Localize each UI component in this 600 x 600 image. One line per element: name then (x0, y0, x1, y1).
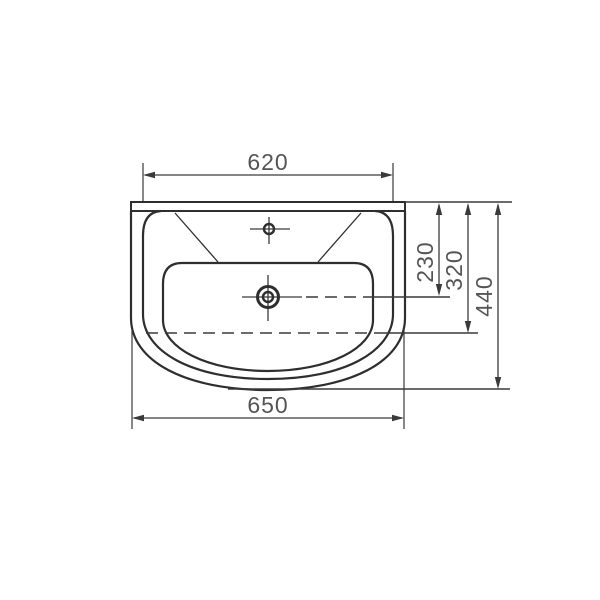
dim-label-230: 230 (412, 241, 438, 282)
dim-label-650: 650 (247, 392, 288, 418)
faucet-hole (250, 217, 290, 244)
arrow-620-left (143, 172, 155, 178)
dimension-230: 230 (412, 203, 442, 296)
dim-label-440: 440 (471, 275, 497, 316)
rim-band (131, 202, 405, 211)
arrow-440-top (495, 203, 501, 215)
arrow-320-bottom (465, 321, 471, 333)
arrow-650-right (392, 415, 404, 421)
arrow-620-right (381, 172, 393, 178)
arrow-650-left (132, 415, 144, 421)
dimension-320: 320 (441, 203, 471, 333)
washbasin-diagram: 620 650 230 320 440 (0, 0, 600, 600)
arrow-320-top (465, 203, 471, 215)
dimension-620: 620 (143, 149, 393, 201)
arrow-440-bottom (495, 377, 501, 389)
dim-label-320: 320 (441, 249, 467, 290)
arrow-230-top (436, 203, 442, 215)
dimension-440: 440 (471, 203, 501, 389)
deck-diagonal-left (175, 213, 218, 262)
drawing-canvas: 620 650 230 320 440 (0, 0, 600, 600)
dim-label-620: 620 (247, 149, 288, 175)
drain (242, 275, 302, 321)
deck-diagonal-right (318, 213, 361, 262)
